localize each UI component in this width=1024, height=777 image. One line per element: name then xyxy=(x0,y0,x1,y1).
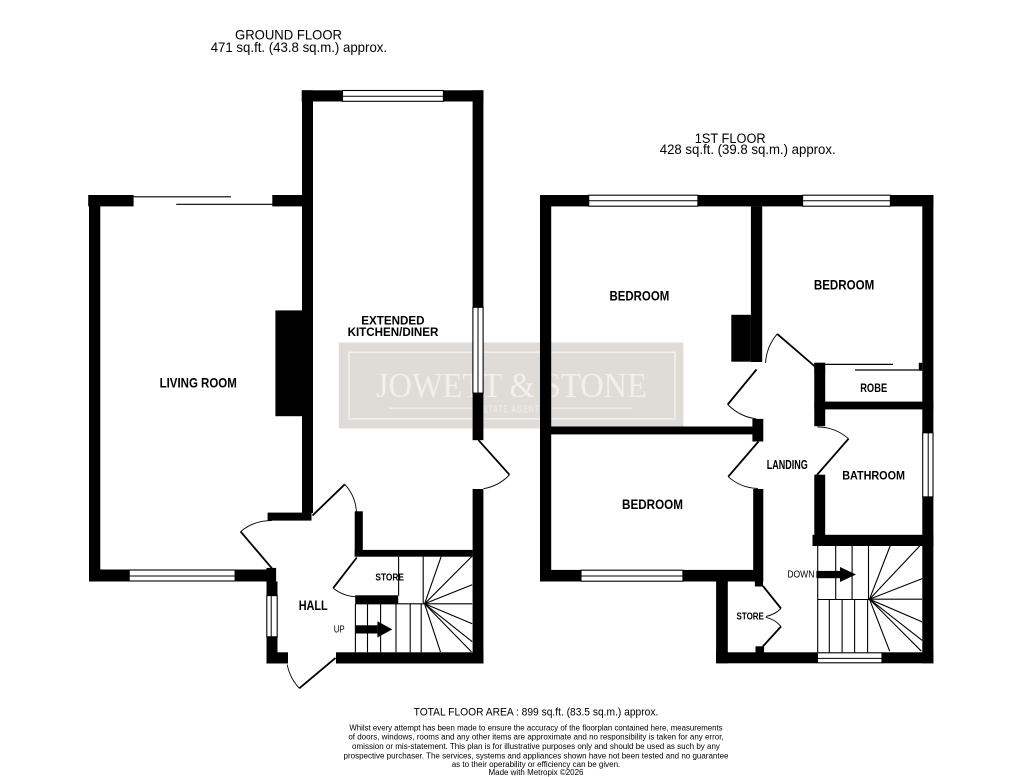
svg-text:STORE: STORE xyxy=(737,611,765,622)
svg-text:of doors, windows, rooms and a: of doors, windows, rooms and any other i… xyxy=(348,733,723,742)
svg-text:STORE: STORE xyxy=(375,572,404,583)
svg-text:LIVING ROOM: LIVING ROOM xyxy=(160,374,237,390)
svg-text:471 sq.ft. (43.8 sq.m.) approx: 471 sq.ft. (43.8 sq.m.) approx. xyxy=(211,39,387,55)
svg-text:LANDING: LANDING xyxy=(767,457,808,472)
svg-text:BEDROOM: BEDROOM xyxy=(814,276,875,292)
svg-text:Whilst every attempt has been: Whilst every attempt has been made to en… xyxy=(349,723,722,732)
svg-text:TOTAL FLOOR AREA : 899 sq.ft.: TOTAL FLOOR AREA : 899 sq.ft. (83.5 sq.m… xyxy=(414,706,659,718)
svg-text:ESTATE AGENTS: ESTATE AGENTS xyxy=(478,405,546,416)
svg-text:HALL: HALL xyxy=(299,597,328,613)
svg-text:JOWETT & STONE: JOWETT & STONE xyxy=(376,366,647,405)
svg-text:ROBE: ROBE xyxy=(860,383,887,395)
svg-text:UP: UP xyxy=(334,625,345,636)
svg-text:Made with Metropix ©2026: Made with Metropix ©2026 xyxy=(489,768,585,777)
svg-text:BATHROOM: BATHROOM xyxy=(842,469,905,483)
svg-text:BEDROOM: BEDROOM xyxy=(610,287,670,303)
svg-text:DOWN: DOWN xyxy=(787,570,814,581)
svg-text:omission or mis-statement. Thi: omission or mis-statement. This plan is … xyxy=(352,742,720,751)
svg-text:BEDROOM: BEDROOM xyxy=(622,496,683,512)
svg-text:428 sq.ft. (39.8 sq.m.) approx: 428 sq.ft. (39.8 sq.m.) approx. xyxy=(660,142,836,157)
svg-text:KITCHEN/DINER: KITCHEN/DINER xyxy=(348,325,439,339)
